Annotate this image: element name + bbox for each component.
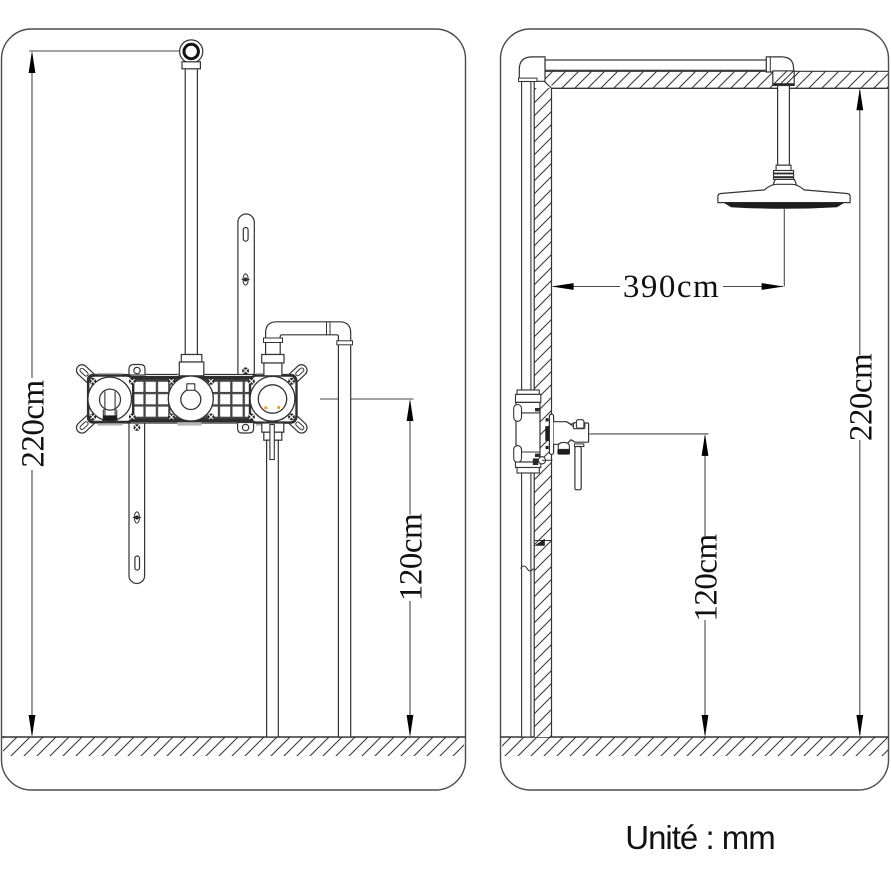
svg-text:220cm: 220cm xyxy=(844,353,880,441)
svg-text:120cm: 120cm xyxy=(689,534,725,622)
svg-text:120cm: 120cm xyxy=(394,513,430,601)
svg-text:390cm: 390cm xyxy=(623,269,720,305)
svg-text:220cm: 220cm xyxy=(16,380,52,468)
svg-text:Unité : mm: Unité : mm xyxy=(625,819,775,856)
